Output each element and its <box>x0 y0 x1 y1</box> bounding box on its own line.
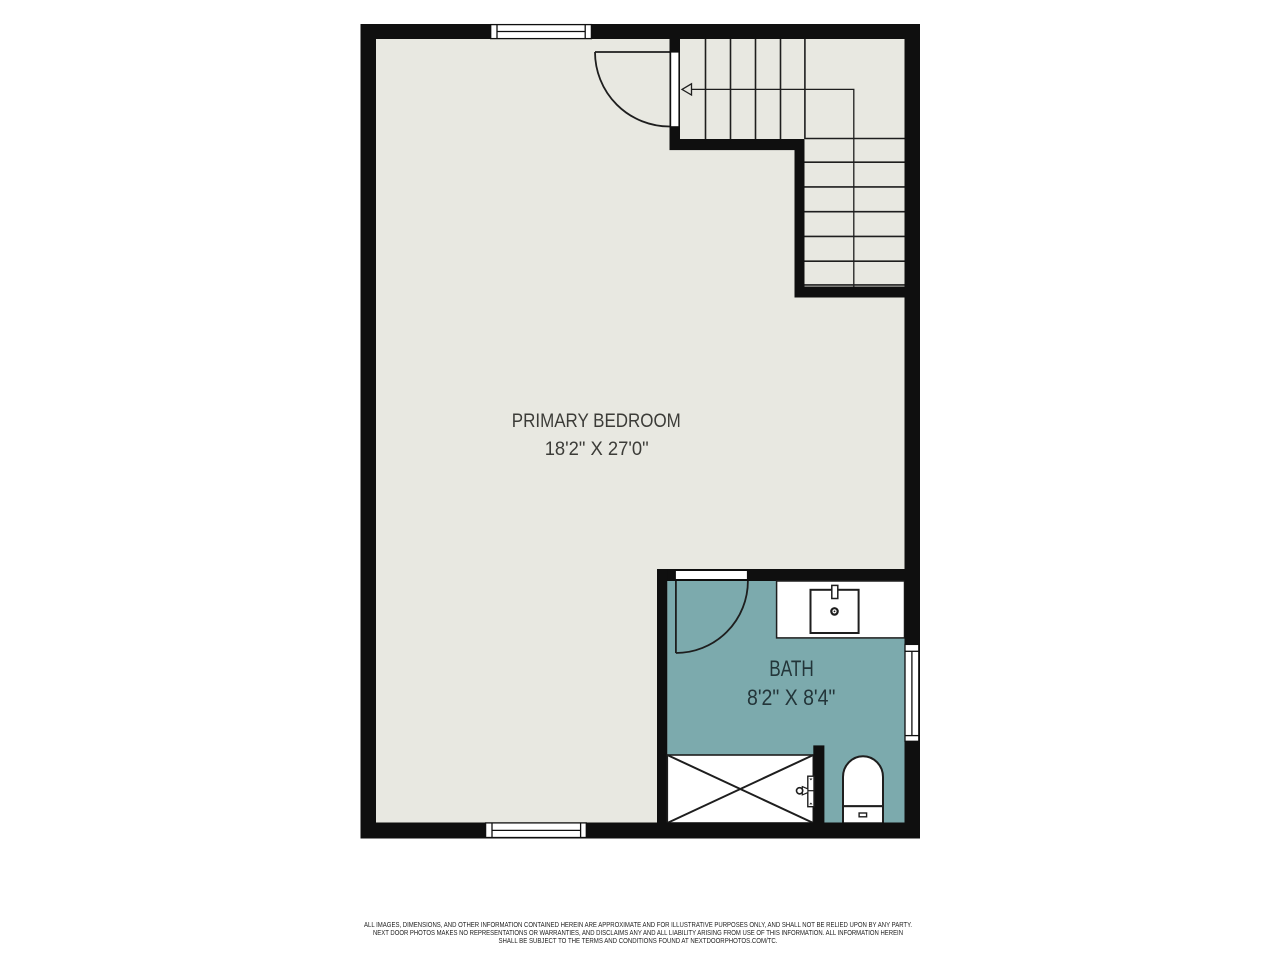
svg-text:NEXT DOOR PHOTOS MAKES NO REPR: NEXT DOOR PHOTOS MAKES NO REPRESENTATION… <box>373 930 903 937</box>
svg-text:8'2" X 8'4": 8'2" X 8'4" <box>747 685 835 710</box>
svg-text:SHALL BE SUBJECT TO THE TERMS: SHALL BE SUBJECT TO THE TERMS AND CONDIT… <box>499 938 778 945</box>
svg-text:18'2" X 27'0": 18'2" X 27'0" <box>545 438 649 460</box>
svg-text:BATH: BATH <box>769 656 814 681</box>
svg-text:PRIMARY BEDROOM: PRIMARY BEDROOM <box>512 410 681 432</box>
svg-text:ALL IMAGES, DIMENSIONS, AND OT: ALL IMAGES, DIMENSIONS, AND OTHER INFORM… <box>364 922 912 929</box>
